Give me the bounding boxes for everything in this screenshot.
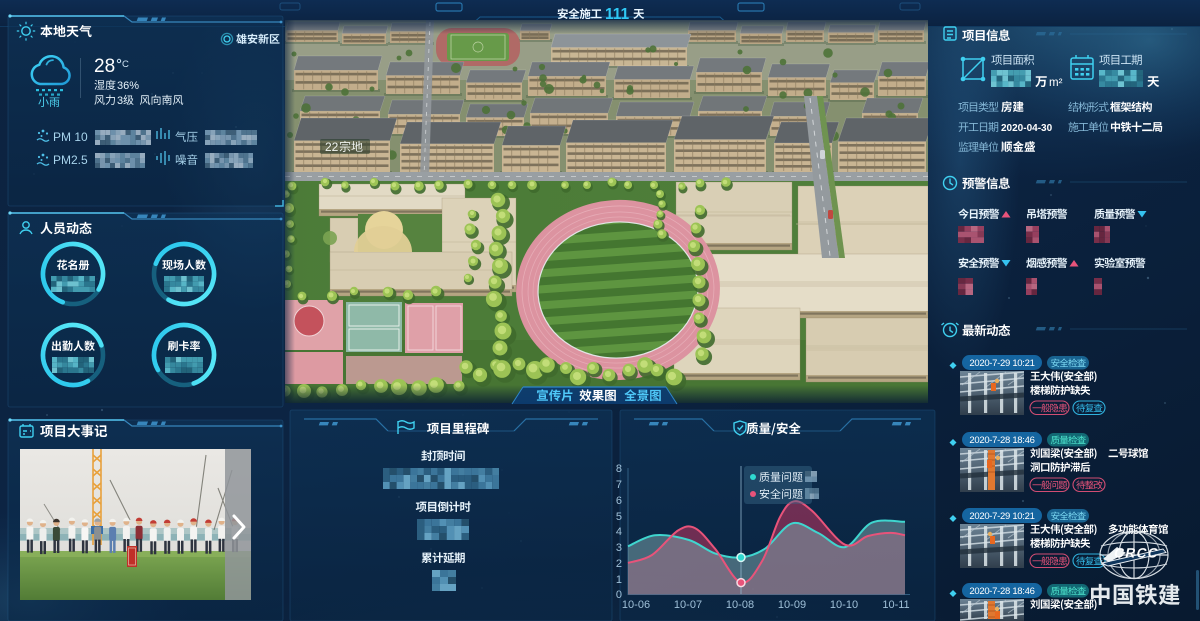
svg-text:CRCC: CRCC	[1113, 546, 1161, 561]
svg-text:PM2.5: PM2.5	[53, 153, 88, 167]
svg-text:28: 28	[94, 56, 115, 77]
svg-text:2020-04-30: 2020-04-30	[1001, 123, 1053, 134]
svg-text:10-09: 10-09	[778, 599, 806, 611]
svg-text:6: 6	[616, 495, 622, 507]
svg-text:2020-7-29 10:21: 2020-7-29 10:21	[969, 511, 1034, 522]
svg-text:36%: 36%	[117, 80, 139, 92]
svg-text:10-10: 10-10	[830, 599, 858, 611]
svg-text:3: 3	[616, 542, 622, 554]
svg-text:2020-7-28 18:46: 2020-7-28 18:46	[969, 586, 1034, 597]
svg-text:5: 5	[616, 511, 622, 523]
svg-text:2020-7-28 18:46: 2020-7-28 18:46	[969, 435, 1034, 446]
svg-text:C: C	[122, 59, 129, 70]
svg-text:3: 3	[117, 95, 123, 107]
svg-text:10-08: 10-08	[726, 599, 754, 611]
svg-text:10-06: 10-06	[622, 599, 650, 611]
svg-text:7: 7	[616, 479, 622, 491]
svg-text:2: 2	[616, 558, 622, 570]
svg-text:22: 22	[325, 140, 339, 154]
svg-text:1: 1	[616, 574, 622, 586]
svg-text:10-11: 10-11	[882, 599, 909, 611]
svg-text:m²: m²	[1049, 77, 1063, 89]
svg-text:8: 8	[616, 463, 622, 475]
svg-text:PM 10: PM 10	[53, 130, 88, 144]
svg-text:2020-7-29 10:21: 2020-7-29 10:21	[969, 358, 1034, 369]
svg-text:4: 4	[616, 526, 622, 538]
svg-text:10-07: 10-07	[674, 599, 702, 611]
